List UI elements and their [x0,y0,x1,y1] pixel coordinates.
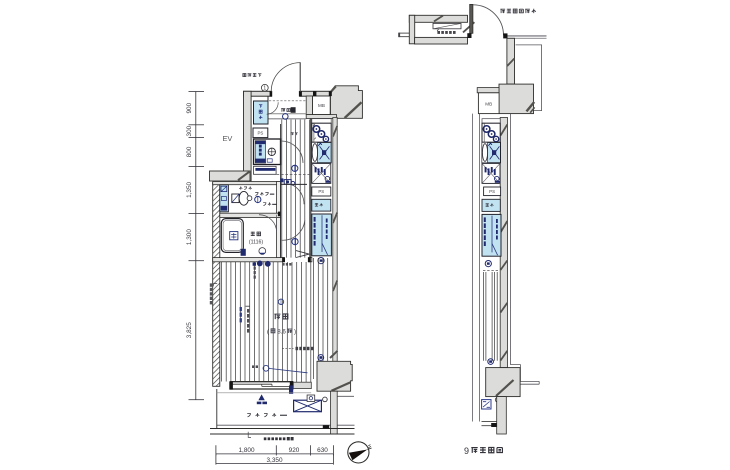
svg-text:920: 920 [289,447,300,454]
svg-text:1,300: 1,300 [186,229,193,245]
svg-text:300: 300 [186,125,193,136]
svg-text:3,350: 3,350 [267,457,283,464]
svg-text:PS: PS [257,131,263,136]
svg-text:8.6: 8.6 [277,329,286,336]
svg-text:630: 630 [317,447,328,454]
svg-text:): ) [294,329,296,336]
svg-text:MB: MB [318,103,325,108]
svg-text:MB: MB [485,102,492,107]
svg-text:1,800: 1,800 [239,447,255,454]
svg-text:900: 900 [186,102,193,113]
svg-text:1: 1 [263,86,266,92]
svg-text:9: 9 [464,446,469,456]
svg-text:3,825: 3,825 [186,322,193,338]
svg-text:(1116): (1116) [249,240,263,246]
svg-text:1,350: 1,350 [186,181,193,197]
svg-text:800: 800 [186,146,193,157]
svg-text:EV: EV [223,134,233,143]
svg-text:PS: PS [318,189,324,194]
svg-text:PS: PS [489,189,495,194]
